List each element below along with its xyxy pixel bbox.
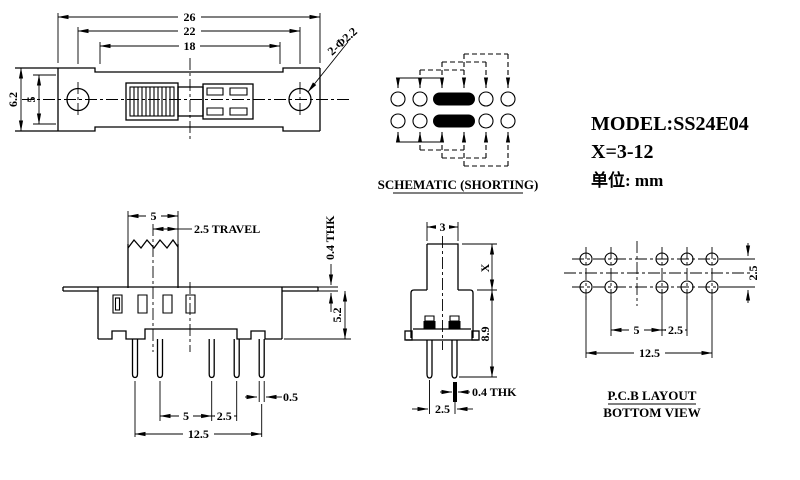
slider-link <box>178 87 203 116</box>
dim-label-26: 26 <box>184 10 196 24</box>
terminal-slots-front <box>113 295 195 313</box>
dim-label-knob-5: 5 <box>151 209 157 223</box>
dim-label-x: X <box>478 263 492 272</box>
dim-label-pcb5: 5 <box>634 323 640 337</box>
dim-label-row-pitch: 2.5 <box>746 266 760 281</box>
dim-label-89: 8.9 <box>478 327 492 342</box>
shorting-contact-pole1 <box>433 93 475 106</box>
pins-side <box>427 340 457 378</box>
dim-label-5: 5 <box>24 97 38 103</box>
drawing-canvas: 26 22 18 6.2 5 2-Φ2.2 <box>0 0 800 480</box>
model-number: MODEL:SS24E04 <box>591 113 749 135</box>
dim-label-height-52: 5.2 <box>330 308 344 323</box>
top-view: 26 22 18 6.2 5 2-Φ2.2 <box>6 10 360 141</box>
dim-label-6-2: 6.2 <box>6 92 20 107</box>
shorting-contact-pole2 <box>433 115 475 128</box>
dim-label-pin-width: 0.5 <box>283 390 298 404</box>
body-side-outline <box>406 290 478 340</box>
dim-label-pitch-side: 2.5 <box>435 402 450 416</box>
dim-label-pcb-total: 12.5 <box>639 346 660 360</box>
terminal-posts-caps <box>425 316 459 321</box>
dim-label-knob-3: 3 <box>440 220 446 234</box>
pin-thickness-section <box>453 382 457 402</box>
dim-label-18: 18 <box>184 39 196 53</box>
schematic-view: SCHEMATIC (SHORTING) <box>378 54 539 193</box>
dim-label-total: 12.5 <box>188 427 209 441</box>
knob-serrations <box>134 87 170 116</box>
dim-label-pcb25: 2.5 <box>668 323 683 337</box>
pcb-caption-line2: BOTTOM VIEW <box>603 405 700 420</box>
slider-knob-inner <box>130 87 174 116</box>
title-block: MODEL:SS24E04 X=3-12 单位: mm <box>591 113 749 190</box>
flange-ext-lines <box>318 287 338 291</box>
dim-label-travel: 2.5 TRAVEL <box>194 222 260 236</box>
slot-contact-detail <box>116 298 120 310</box>
terminal-posts <box>424 321 461 330</box>
pcb-hole-centerlines <box>564 241 750 306</box>
schematic-caption: SCHEMATIC (SHORTING) <box>378 177 539 192</box>
pins-front <box>133 339 265 378</box>
front-view: 5 2.5 TRAVEL 5 2.5 0.5 12.5 0.4 THK 5.2 <box>63 209 351 441</box>
side-view: 3 X 8.9 0.4 THK 2.5 <box>405 220 517 416</box>
mounting-flange <box>63 287 318 291</box>
pcb-caption-line1: P.C.B LAYOUT <box>608 388 697 403</box>
dim-label-thk-front: 0.4 THK <box>323 215 337 260</box>
pcb-layout-view: 2.5 5 2.5 12.5 P.C.B LAYOUT BOTTOM VIEW <box>564 241 760 420</box>
terminal-slots <box>207 88 247 115</box>
drawing-sheet: 26 22 18 6.2 5 2-Φ2.2 <box>0 0 800 480</box>
dim-label-thk-side: 0.4 THK <box>472 385 517 399</box>
x-range: X=3-12 <box>591 141 654 163</box>
hole-callout-label: 2-Φ2.2 <box>325 24 360 58</box>
dim-label-pitch5: 5 <box>183 409 189 423</box>
dim-label-pitch25: 2.5 <box>217 409 232 423</box>
dim-label-22: 22 <box>184 24 196 38</box>
terminal-window <box>203 84 253 119</box>
units-note: 单位: mm <box>591 170 663 190</box>
